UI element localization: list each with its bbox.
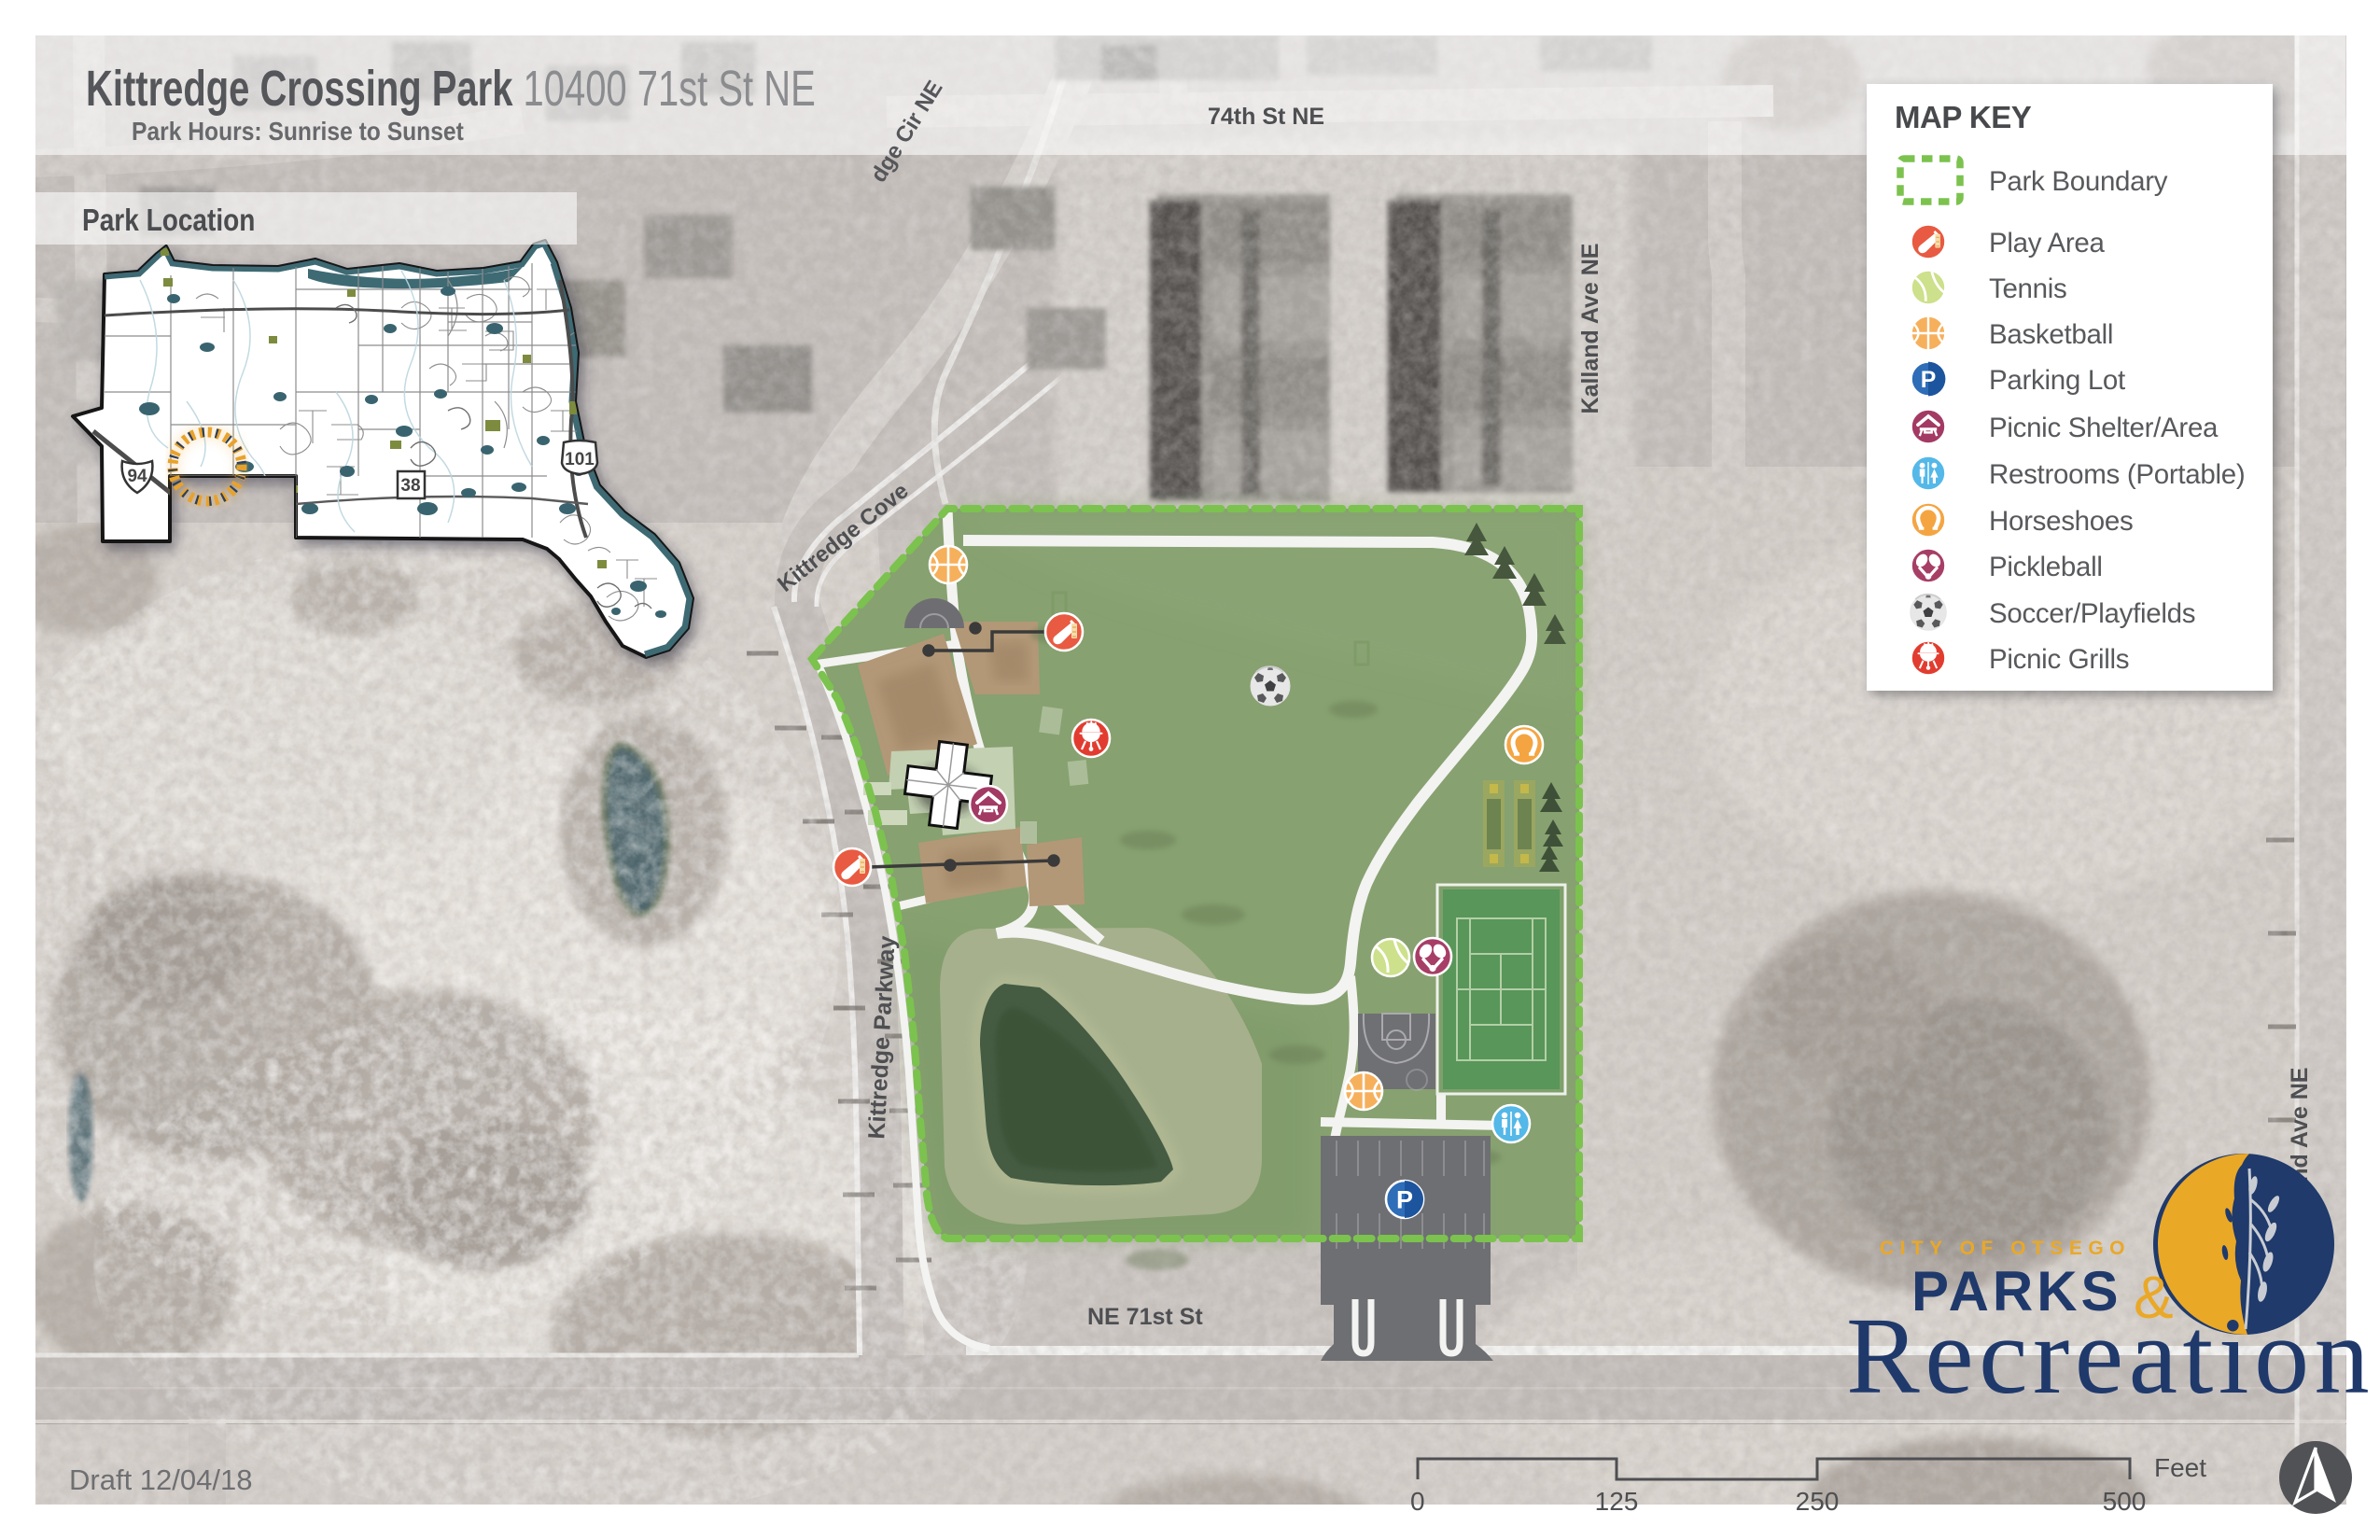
svg-text:Park Boundary: Park Boundary [1989,166,2168,197]
svg-text:Park Location: Park Location [82,203,255,238]
svg-text:125: 125 [1595,1487,1639,1516]
svg-text:NE 71st St: NE 71st St [1087,1304,1203,1330]
svg-text:Play Area: Play Area [1989,228,2105,259]
svg-text:Kalland Ave NE: Kalland Ave NE [1577,244,1603,414]
svg-text:CITY OF OTSEGO: CITY OF OTSEGO [1880,1238,2131,1259]
svg-text:Soccer/Playfields: Soccer/Playfields [1989,598,2195,629]
svg-text:38: 38 [400,476,420,496]
svg-text:Horseshoes: Horseshoes [1989,506,2133,537]
svg-text:Recreation: Recreation [1846,1295,2374,1417]
svg-text:0: 0 [1410,1487,1425,1516]
svg-text:500: 500 [2103,1487,2147,1516]
svg-text:Feet: Feet [2154,1453,2206,1482]
svg-text:Restrooms (Portable): Restrooms (Portable) [1989,459,2245,490]
svg-text:Basketball: Basketball [1989,319,2113,350]
svg-text:Parking Lot: Parking Lot [1989,365,2125,396]
svg-text:Tennis: Tennis [1989,273,2066,304]
svg-text:Picnic Grills: Picnic Grills [1989,644,2129,675]
svg-text:MAP KEY: MAP KEY [1895,100,2032,134]
svg-text:Picnic Shelter/Area: Picnic Shelter/Area [1989,413,2219,443]
svg-text:Pickleball: Pickleball [1989,552,2103,582]
svg-text:Park Hours: Sunrise to Sunset: Park Hours: Sunrise to Sunset [132,117,464,147]
svg-text:Draft 12/04/18: Draft 12/04/18 [69,1463,252,1496]
svg-text:Kittredge Crossing Park 10400: Kittredge Crossing Park 10400 71st St NE [86,61,816,117]
svg-text:94: 94 [127,467,147,486]
svg-text:250: 250 [1796,1487,1840,1516]
svg-text:74th St NE: 74th St NE [1208,104,1324,130]
svg-text:101: 101 [565,450,595,469]
